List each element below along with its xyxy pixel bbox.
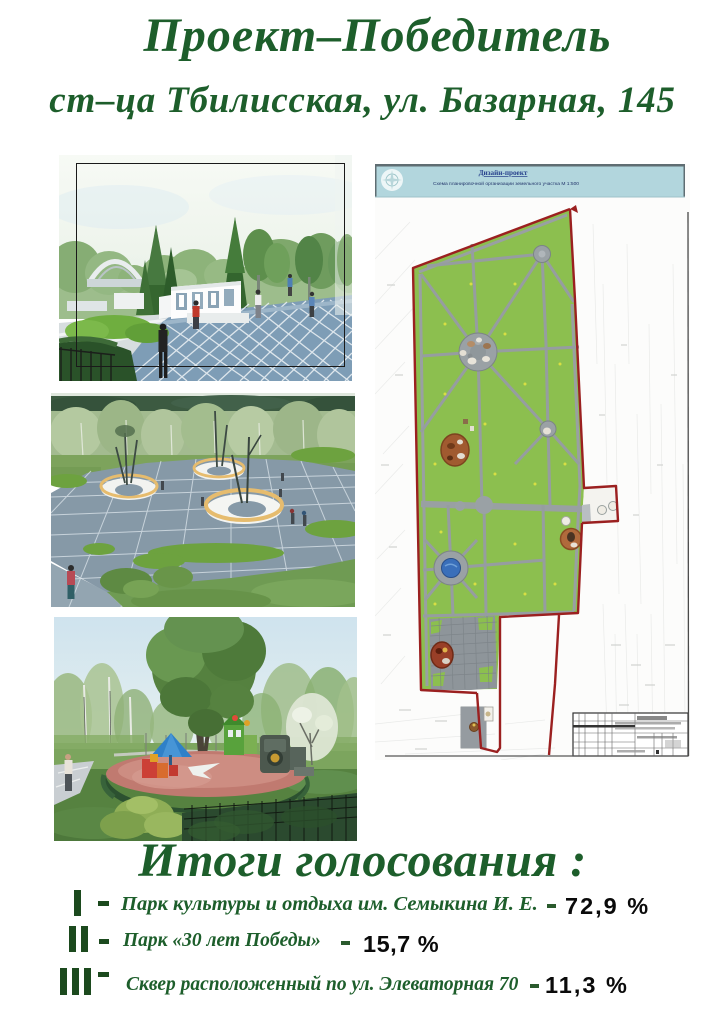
svg-text:Дизайн-проект: Дизайн-проект xyxy=(479,169,528,177)
svg-text:Схема планировочной организаци: Схема планировочной организации земельно… xyxy=(433,180,579,187)
